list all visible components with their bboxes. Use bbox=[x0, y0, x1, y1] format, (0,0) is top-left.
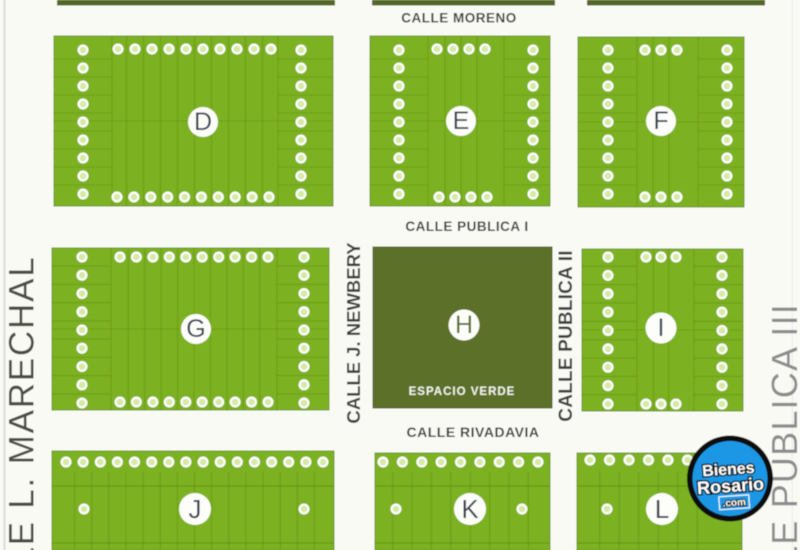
svg-text:K: K bbox=[461, 494, 479, 524]
svg-text:H: H bbox=[455, 311, 473, 339]
svg-text:.com: .com bbox=[722, 497, 746, 510]
svg-text:J: J bbox=[189, 494, 202, 524]
svg-text:CALLE MORENO: CALLE MORENO bbox=[401, 11, 517, 26]
svg-text:CALLE PUBLICA II: CALLE PUBLICA II bbox=[556, 250, 577, 421]
svg-text:I: I bbox=[658, 314, 665, 342]
svg-text:CALLE RIVADAVIA: CALLE RIVADAVIA bbox=[407, 424, 540, 440]
svg-text:CALLE PUBLICA III: CALLE PUBLICA III bbox=[764, 303, 800, 550]
svg-text:F: F bbox=[653, 107, 668, 135]
svg-text:CALLE J. NEWBERY: CALLE J. NEWBERY bbox=[343, 242, 364, 424]
svg-text:L: L bbox=[655, 494, 669, 524]
svg-text:G: G bbox=[186, 315, 205, 343]
svg-text:E: E bbox=[453, 107, 470, 135]
svg-text:CALLE L. MARECHAL: CALLE L. MARECHAL bbox=[3, 256, 42, 550]
svg-text:ESPACIO VERDE: ESPACIO VERDE bbox=[409, 386, 516, 398]
svg-text:D: D bbox=[194, 108, 212, 136]
svg-text:CALLE PUBLICA I: CALLE PUBLICA I bbox=[405, 219, 528, 234]
